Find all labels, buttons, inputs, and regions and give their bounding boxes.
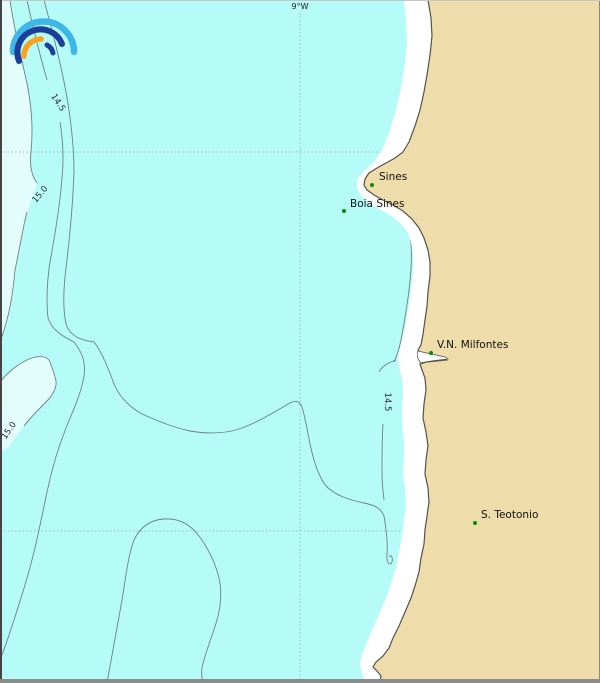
- map-canvas: 9°W 14.5 15.0 15.0 14.5 Sines Boia Sines…: [0, 0, 600, 683]
- marker-boia-sines: [342, 209, 346, 213]
- sst-coastal-map: 9°W 14.5 15.0 15.0 14.5 Sines Boia Sines…: [0, 0, 600, 683]
- place-label-vn-milfontes: V.N. Milfontes: [437, 339, 508, 351]
- contour-label-14-5-coastal: 14.5: [382, 393, 392, 412]
- frame-top: [0, 0, 600, 1]
- frame-bottom: [0, 679, 600, 683]
- marker-s-teotonio: [473, 521, 477, 525]
- place-label-s-teotonio: S. Teotonio: [481, 509, 538, 521]
- marker-sines: [370, 183, 374, 187]
- meridian-label: 9°W: [292, 2, 309, 11]
- marker-vn-milfontes: [429, 351, 433, 355]
- frame-left: [0, 0, 2, 683]
- place-label-sines: Sines: [379, 171, 407, 183]
- place-label-boia-sines: Boia Sines: [350, 198, 404, 210]
